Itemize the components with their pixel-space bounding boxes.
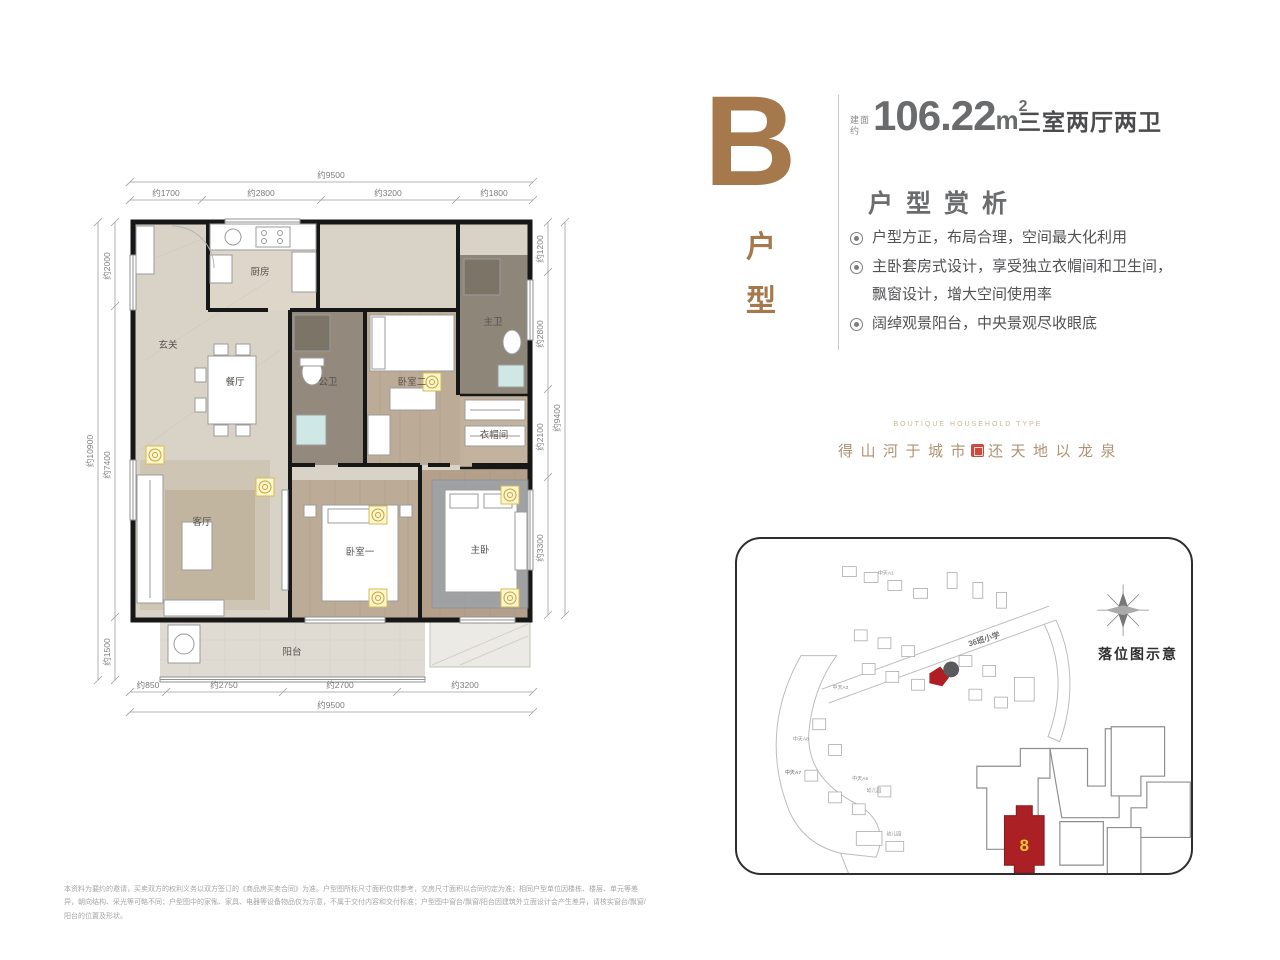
site-map: 36班小学 中天A1 中天A3 中天A6 中天A7 中天A8 幼儿园 幼儿园 bbox=[737, 539, 1191, 873]
area-prefix: 建面 约 bbox=[850, 96, 870, 136]
map-label: 中天A6 bbox=[852, 775, 868, 782]
location-marker bbox=[929, 662, 959, 687]
dim-right-2: 约2100 bbox=[535, 423, 545, 451]
dim-top-3: 约1800 bbox=[480, 188, 508, 198]
building-cluster bbox=[977, 727, 1190, 873]
feature-text: 阔绰观景阳台，中央景观尽收眼底 bbox=[872, 315, 1097, 332]
room-label-balcony: 阳台 bbox=[282, 646, 301, 658]
feature-item: 阔绰观景阳台，中央景观尽收眼底 bbox=[850, 310, 1186, 338]
map-label: 中天A1 bbox=[878, 570, 894, 577]
bullet-icon bbox=[850, 318, 863, 331]
area-prefix-top: 建面 bbox=[850, 115, 870, 125]
room-label-master-bath: 主卫 bbox=[483, 316, 503, 328]
dim-right-3: 约3300 bbox=[535, 534, 545, 562]
dim-bottom-2: 约2700 bbox=[326, 680, 354, 690]
unit-type-char-1: 户 bbox=[741, 222, 781, 266]
site-plan-labels: 36班小学 中天A1 中天A3 中天A6 中天A7 中天A8 幼儿园 幼儿园 bbox=[785, 570, 1001, 838]
dim-bottom-3: 约3200 bbox=[451, 680, 479, 690]
room-label-entry: 玄关 bbox=[158, 339, 178, 351]
room-label-living: 客厅 bbox=[192, 516, 212, 528]
brochure-page: 玄关 厨房 餐厅 公卫 卧室二 主卫 衣帽间 客厅 卧室一 主卧 阳台 bbox=[0, 0, 1280, 960]
site-map-panel: 36班小学 中天A1 中天A3 中天A6 中天A7 中天A8 幼儿园 幼儿园 bbox=[735, 537, 1193, 875]
area-prefix-bottom: 约 bbox=[850, 126, 870, 136]
dim-top-total: 约9500 bbox=[317, 170, 345, 180]
disclaimer-text: 本资料为要约的邀请，买卖双方的权利义务以双方签订的《商品房买卖合同》为准。户型图… bbox=[64, 883, 649, 923]
bullet-icon bbox=[850, 261, 863, 274]
room-label-closet: 衣帽间 bbox=[480, 429, 509, 441]
unit-type-char-2: 型 bbox=[741, 276, 781, 320]
dim-top-1: 约2800 bbox=[247, 188, 275, 198]
tagline-english: BOUTIQUE HOUSEHOLD TYPE bbox=[838, 421, 1098, 428]
dim-right-0: 约1200 bbox=[535, 235, 545, 263]
tagline-left: 得山河于城市 bbox=[838, 440, 973, 461]
vertical-divider bbox=[838, 95, 839, 350]
dim-top-0: 约1700 bbox=[152, 188, 180, 198]
unit-type-letter: B bbox=[704, 78, 796, 206]
compass-icon bbox=[1097, 584, 1148, 635]
map-label: 中天A7 bbox=[785, 769, 801, 776]
tagline-right: 还天地以龙泉 bbox=[988, 440, 1123, 461]
seal-icon bbox=[971, 444, 984, 457]
section-title: 户型赏析 bbox=[868, 184, 1020, 220]
map-label: 幼儿园 bbox=[886, 830, 901, 837]
floor-plan: 玄关 厨房 餐厅 公卫 卧室二 主卫 衣帽间 客厅 卧室一 主卧 阳台 bbox=[60, 160, 640, 730]
layout-summary: 三室两厅两卫 bbox=[1018, 103, 1162, 137]
feature-text: 户型方正，布局合理，空间最大化利用 bbox=[872, 229, 1127, 246]
building-number: 8 bbox=[1020, 836, 1029, 855]
school-label: 36班小学 bbox=[967, 629, 1001, 648]
area-unit: m bbox=[995, 96, 1018, 144]
room-label-dining: 餐厅 bbox=[225, 376, 245, 388]
room-label-guest-bath: 公卫 bbox=[318, 377, 338, 388]
dim-right-1: 约2800 bbox=[535, 320, 545, 348]
dim-left-1: 约7400 bbox=[102, 451, 112, 479]
bullet-icon bbox=[850, 232, 863, 245]
area-row: 建面 约 106.22 m 2 bbox=[850, 96, 1028, 144]
dim-bottom-0: 约850 bbox=[137, 680, 160, 690]
room-label-kitchen: 厨房 bbox=[250, 266, 269, 278]
dim-bottom-total: 约9500 bbox=[317, 700, 345, 710]
dim-top-2: 约3200 bbox=[374, 188, 402, 198]
feature-text: 主卧套房式设计，享受独立衣帽间和卫生间，飘窗设计，增大空间使用率 bbox=[872, 258, 1172, 303]
feature-item: 户型方正，布局合理，空间最大化利用 bbox=[850, 224, 1186, 252]
dim-bottom-1: 约2750 bbox=[210, 680, 238, 690]
map-label: 中天A3 bbox=[833, 684, 849, 691]
dim-left-2: 约1500 bbox=[102, 638, 112, 666]
feature-item: 主卧套房式设计，享受独立衣帽间和卫生间，飘窗设计，增大空间使用率 bbox=[850, 253, 1186, 309]
room-label-bedroom1: 卧室一 bbox=[346, 546, 375, 558]
site-map-title: 落位图示意 bbox=[1098, 644, 1178, 664]
room-label-bedroom2: 卧室二 bbox=[398, 376, 427, 388]
tagline-chinese: 得山河于城市 还天地以龙泉 bbox=[838, 440, 1123, 461]
dim-left-total: 约10900 bbox=[85, 435, 95, 467]
room-label-master: 主卧 bbox=[470, 544, 490, 556]
area-value: 106.22 bbox=[873, 96, 995, 136]
feature-list: 户型方正，布局合理，空间最大化利用 主卧套房式设计，享受独立衣帽间和卫生间，飘窗… bbox=[850, 224, 1186, 339]
dim-left-0: 约2000 bbox=[102, 252, 112, 280]
dim-right-total: 约9400 bbox=[552, 404, 562, 432]
map-label: 幼儿园 bbox=[867, 787, 882, 794]
map-label: 中天A8 bbox=[793, 736, 809, 743]
